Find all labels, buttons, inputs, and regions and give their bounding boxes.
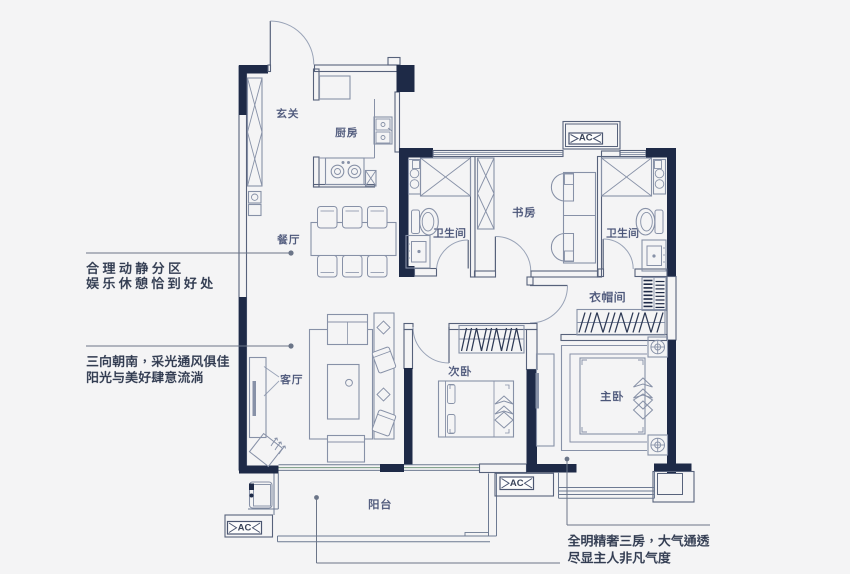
svg-text:AC: AC: [238, 523, 252, 534]
svg-text:AC: AC: [510, 478, 524, 489]
svg-text:AC: AC: [579, 133, 593, 144]
